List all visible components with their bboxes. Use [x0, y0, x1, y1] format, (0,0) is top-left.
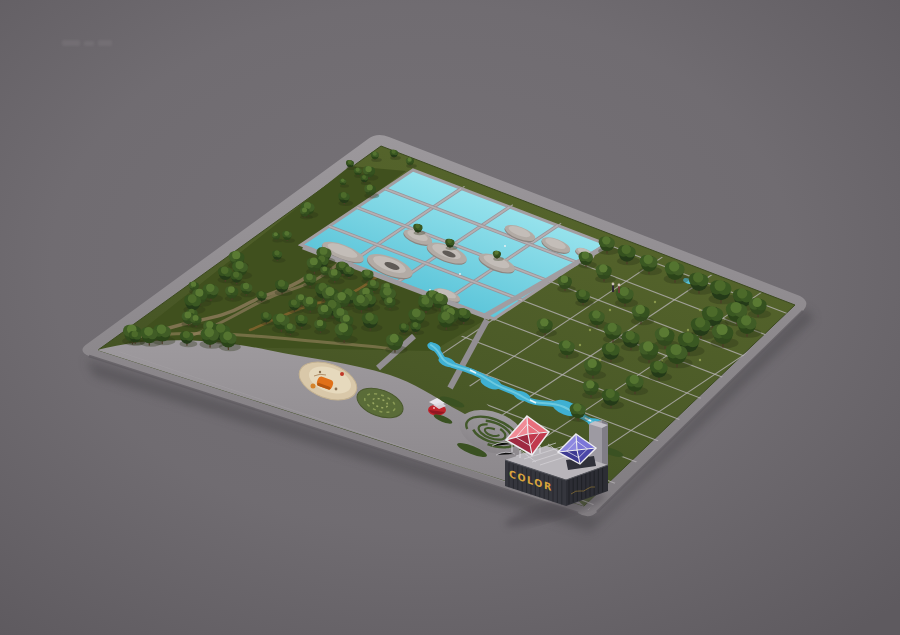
person	[612, 283, 615, 292]
person	[618, 284, 621, 293]
park-render: COLOR	[0, 0, 900, 635]
render-viewport: COLOR	[0, 0, 900, 635]
